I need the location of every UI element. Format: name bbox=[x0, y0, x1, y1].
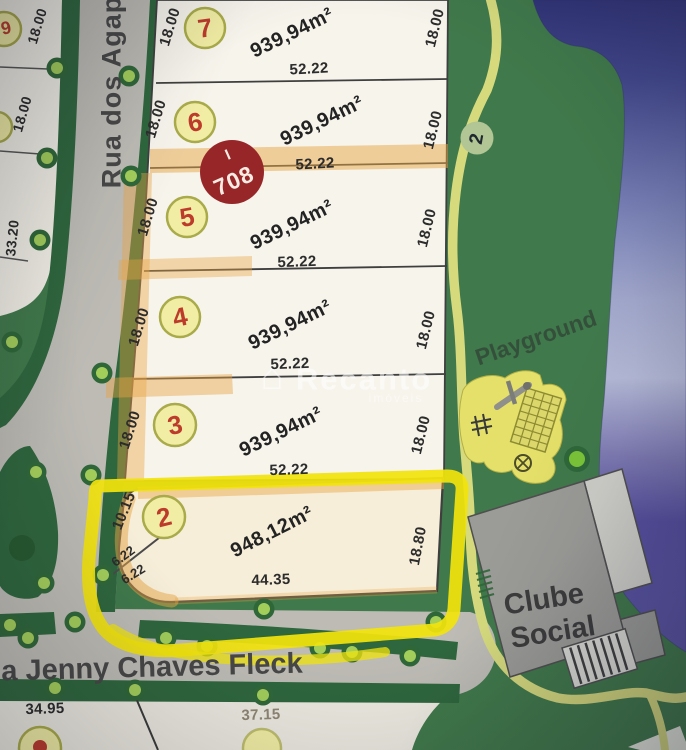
tree-icon bbox=[254, 599, 275, 620]
tree-icon bbox=[47, 58, 68, 79]
watermark-subtitle: imóveis bbox=[369, 392, 424, 404]
tree-icon bbox=[37, 148, 58, 169]
tree-icon bbox=[0, 615, 21, 636]
tree-icon bbox=[26, 462, 47, 483]
street-name-vertical: Rua dos Agap bbox=[99, 0, 126, 188]
bottom-dim-right: 37.15 bbox=[241, 707, 281, 723]
lot-front-dim: 44.35 bbox=[251, 572, 291, 588]
lot-front-dim: 52.22 bbox=[289, 60, 329, 77]
tree-icon bbox=[34, 573, 55, 594]
lot-front-dim: 52.22 bbox=[269, 462, 309, 478]
tree-icon bbox=[92, 363, 113, 384]
tree-icon bbox=[2, 332, 23, 353]
bush-icon bbox=[9, 535, 35, 561]
bottom-dim-left: 34.95 bbox=[25, 701, 65, 717]
lot-front-dim: 52.22 bbox=[277, 254, 317, 270]
tree-icon bbox=[400, 646, 421, 667]
lot-front-dim: 52.22 bbox=[270, 356, 310, 372]
subdivision-plat-map-photo[interactable]: Rua dos Agap a Jenny Chaves Fleck Playgr… bbox=[0, 0, 686, 750]
tree-icon bbox=[564, 446, 590, 472]
tree-icon bbox=[18, 628, 39, 649]
tree-icon bbox=[253, 685, 274, 706]
lot-front-dim: 52.22 bbox=[295, 155, 335, 172]
watermark-brand: Recanto bbox=[296, 364, 432, 395]
tree-icon bbox=[30, 230, 51, 251]
left-lot-dim-bottom: 33.20 bbox=[3, 219, 21, 257]
tree-icon bbox=[93, 565, 114, 586]
tree-icon bbox=[65, 612, 86, 633]
